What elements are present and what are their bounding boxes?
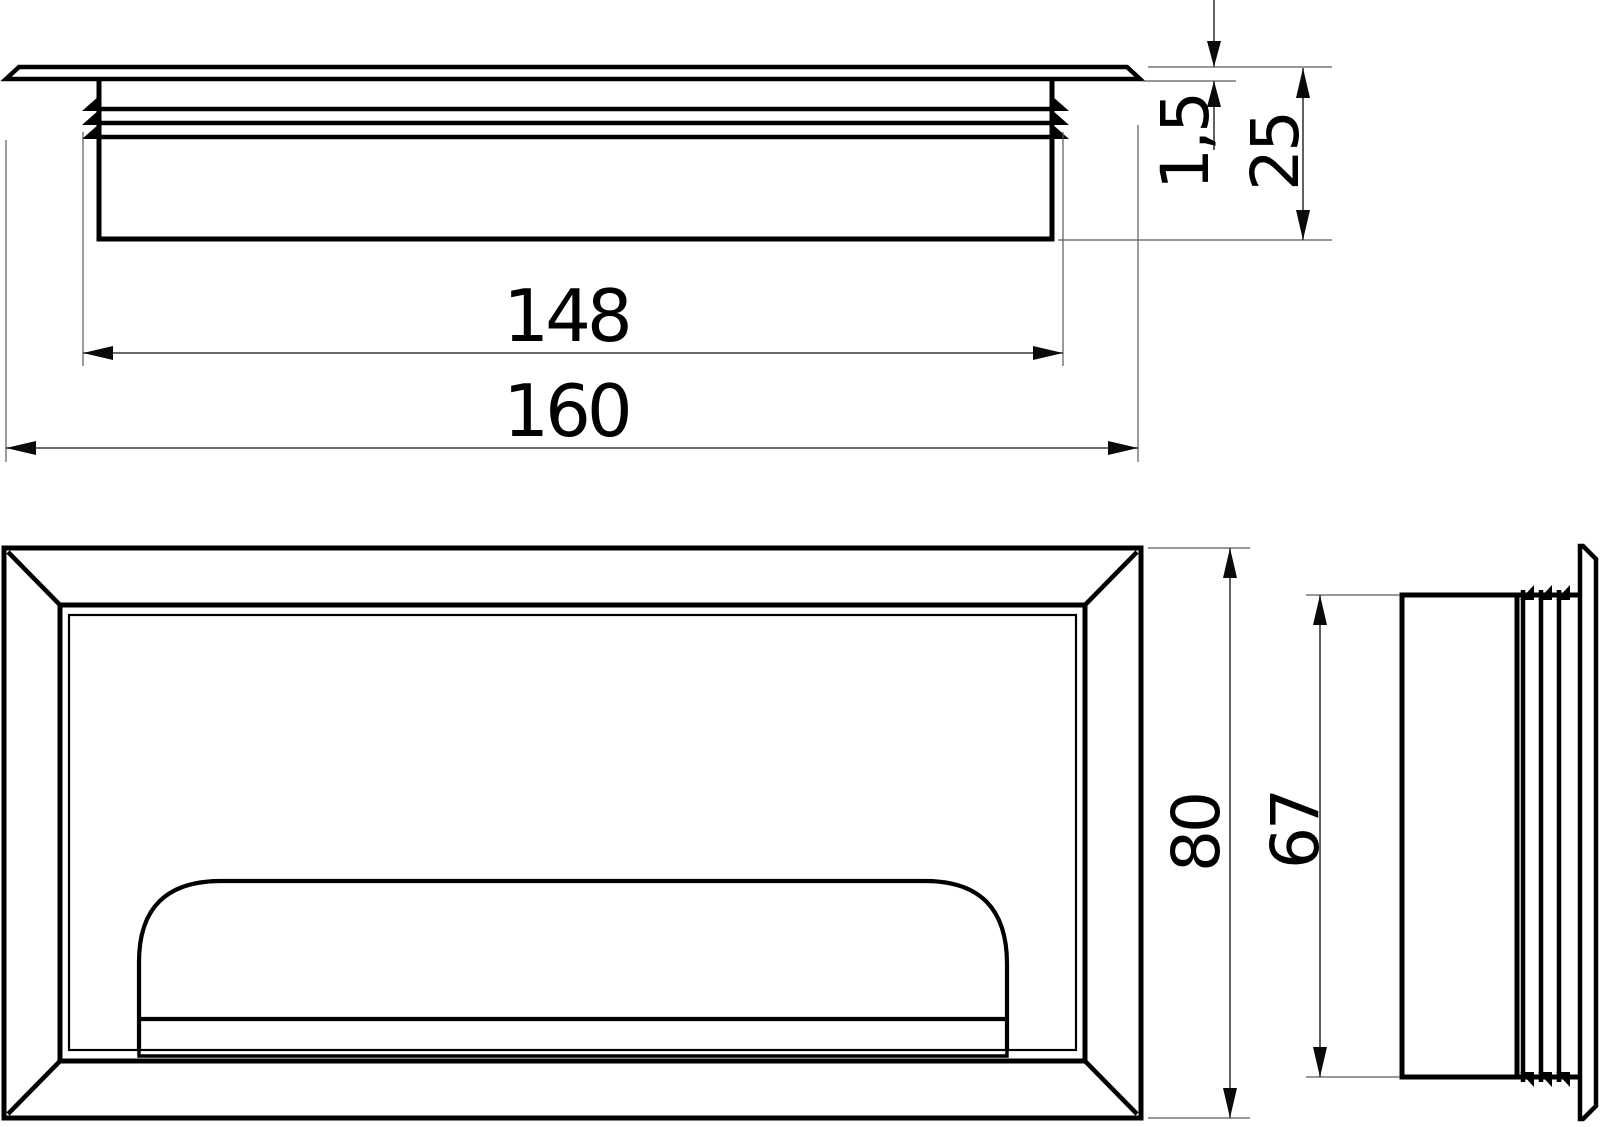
bevel-bottom-right — [1083, 1059, 1137, 1114]
dimension-label-1-5: 1,5 — [1147, 94, 1224, 190]
bevel-top-right — [1083, 552, 1137, 607]
side-flange-bar — [1580, 546, 1596, 1119]
dimension-label-25: 25 — [1237, 113, 1314, 191]
arrowhead-down — [1207, 41, 1221, 67]
barb-left — [82, 96, 99, 111]
arrowhead-left — [6, 441, 36, 455]
arrowhead-down — [1296, 210, 1310, 240]
view-front — [4, 548, 1141, 1118]
side-body-outline — [1402, 595, 1517, 1077]
barb-right — [1052, 124, 1069, 139]
arrowhead-down — [1223, 1088, 1237, 1118]
dimension-67: 67 — [1257, 595, 1400, 1077]
dimension-1-5: 1,5 — [1143, 0, 1236, 190]
view-side — [1402, 546, 1596, 1119]
lid-outline — [139, 881, 1007, 1050]
technical-drawing-canvas: 1,5 25 148 160 — [0, 0, 1600, 1127]
dimension-148: 148 — [83, 132, 1063, 366]
barb-right — [1052, 96, 1069, 111]
dimension-label-160: 160 — [503, 369, 629, 453]
front-opening-edge — [69, 615, 1076, 1050]
insert-body-outline — [99, 80, 1052, 239]
barb-left — [82, 110, 99, 125]
arrowhead-right — [1033, 346, 1063, 360]
bevel-top-left — [8, 552, 62, 607]
dimension-label-67: 67 — [1257, 791, 1334, 869]
flange-profile — [6, 67, 1140, 79]
arrowhead-up — [1296, 68, 1310, 98]
dimension-label-148: 148 — [503, 274, 628, 358]
dimension-label-80: 80 — [1158, 794, 1235, 872]
drawing-sheet: 1,5 25 148 160 — [0, 0, 1600, 1127]
front-inner-frame — [60, 605, 1085, 1061]
front-outer-frame — [4, 548, 1141, 1118]
arrowhead-up — [1223, 548, 1237, 578]
arrowhead-down — [1313, 1047, 1327, 1077]
view-top-section — [6, 67, 1140, 239]
arrowhead-up — [1313, 595, 1327, 625]
arrowhead-left — [83, 346, 113, 360]
barb-right — [1052, 110, 1069, 125]
bevel-bottom-left — [8, 1059, 62, 1114]
dimension-80: 80 — [1148, 548, 1250, 1118]
barb-left — [82, 124, 99, 139]
arrowhead-right — [1108, 441, 1138, 455]
